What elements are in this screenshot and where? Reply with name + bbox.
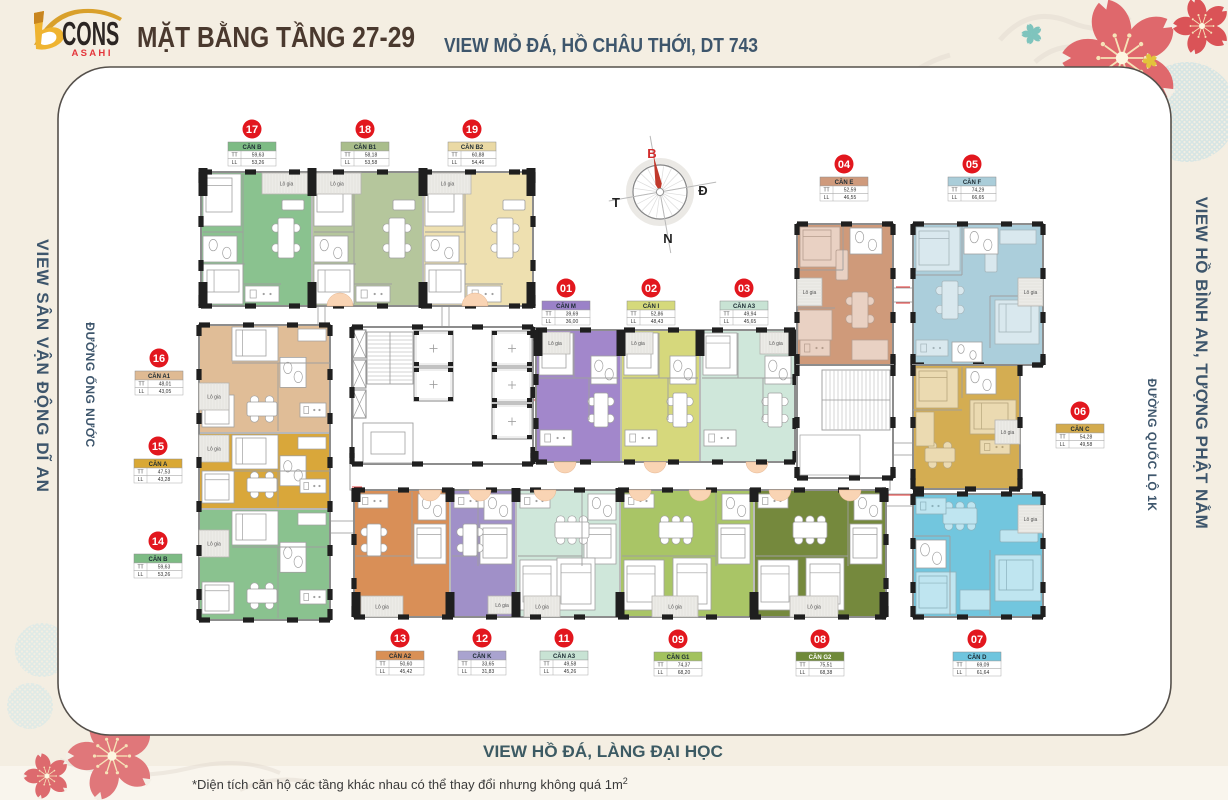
svg-text:B: B	[647, 146, 656, 161]
svg-text:Lô gia: Lô gia	[631, 341, 645, 347]
svg-text:TT: TT	[956, 663, 962, 669]
svg-text:LL: LL	[232, 160, 238, 166]
svg-text:LL: LL	[658, 670, 664, 676]
svg-text:52,59: 52,59	[844, 188, 857, 194]
svg-text:Lô gia: Lô gia	[207, 541, 221, 547]
svg-text:74,37: 74,37	[678, 663, 691, 669]
svg-text:LL: LL	[544, 669, 550, 675]
svg-text:58,18: 58,18	[365, 153, 378, 159]
svg-text:68,38: 68,38	[820, 670, 833, 676]
svg-text:60,88: 60,88	[472, 153, 485, 159]
svg-text:53,58: 53,58	[365, 160, 378, 166]
svg-text:Lô gia: Lô gia	[495, 603, 509, 609]
svg-text:Lô gia: Lô gia	[807, 604, 821, 610]
svg-text:47,53: 47,53	[158, 470, 171, 476]
svg-text:Lô gia: Lô gia	[375, 604, 389, 610]
svg-text:TT: TT	[451, 153, 457, 159]
svg-text:A S A H I: A S A H I	[71, 48, 110, 59]
svg-text:LL: LL	[380, 669, 386, 675]
svg-text:CĂN D: CĂN D	[968, 654, 988, 661]
svg-text:ĐƯỜNG QUỐC LỘ 1K: ĐƯỜNG QUỐC LỘ 1K	[1145, 379, 1160, 512]
svg-text:Lô gia: Lô gia	[548, 341, 562, 347]
svg-text:CĂN K: CĂN K	[473, 653, 493, 660]
svg-text:CONS: CONS	[62, 15, 119, 53]
svg-text:Lô gia: Lô gia	[1024, 290, 1038, 296]
svg-text:TT: TT	[630, 312, 636, 318]
svg-text:LL: LL	[952, 195, 958, 201]
svg-text:61,64: 61,64	[977, 670, 990, 676]
svg-text:18: 18	[359, 124, 371, 136]
svg-text:59,63: 59,63	[158, 565, 171, 571]
svg-text:19: 19	[466, 124, 478, 136]
svg-text:11: 11	[558, 633, 570, 645]
svg-text:TT: TT	[461, 662, 467, 668]
svg-text:TT: TT	[823, 188, 829, 194]
svg-text:LL: LL	[139, 389, 145, 395]
svg-text:Lô gia: Lô gia	[207, 394, 221, 400]
svg-text:49,94: 49,94	[744, 312, 757, 318]
svg-text:75,51: 75,51	[820, 663, 833, 669]
svg-text:LL: LL	[345, 160, 351, 166]
svg-text:53,26: 53,26	[252, 160, 265, 166]
svg-text:LL: LL	[138, 572, 144, 578]
svg-text:VIEW HỒ BÌNH AN, TƯỢNG PHẬT NẰ: VIEW HỒ BÌNH AN, TƯỢNG PHẬT NẰM	[1192, 197, 1211, 529]
svg-text:31,83: 31,83	[482, 669, 495, 675]
svg-text:TT: TT	[545, 312, 551, 318]
svg-text:CĂN A2: CĂN A2	[389, 653, 412, 660]
svg-text:54,28: 54,28	[1080, 435, 1093, 441]
svg-text:TT: TT	[799, 663, 805, 669]
svg-text:T: T	[612, 195, 620, 210]
svg-text:CĂN A3: CĂN A3	[553, 653, 576, 660]
svg-text:46,55: 46,55	[844, 195, 857, 201]
svg-text:CĂN I: CĂN I	[643, 303, 660, 310]
svg-text:CĂN B: CĂN B	[243, 144, 263, 151]
svg-text:TT: TT	[657, 663, 663, 669]
svg-text:LL: LL	[138, 477, 144, 483]
svg-text:04: 04	[838, 159, 851, 171]
svg-text:ĐƯỜNG ỐNG NƯỚC: ĐƯỜNG ỐNG NƯỚC	[83, 322, 98, 447]
svg-text:CĂN A1: CĂN A1	[148, 373, 171, 380]
svg-text:MẶT BẰNG TẦNG 27-29: MẶT BẰNG TẦNG 27-29	[137, 20, 415, 54]
svg-text:TT: TT	[1059, 435, 1065, 441]
svg-text:LL: LL	[724, 319, 730, 325]
svg-text:14: 14	[152, 536, 165, 548]
svg-text:08: 08	[814, 634, 826, 646]
svg-text:TT: TT	[137, 565, 143, 571]
svg-text:TT: TT	[951, 188, 957, 194]
svg-text:CĂN G2: CĂN G2	[809, 654, 832, 661]
svg-text:01: 01	[560, 283, 572, 295]
svg-text:50,60: 50,60	[400, 662, 413, 668]
svg-text:Lô gia: Lô gia	[769, 341, 783, 347]
svg-text:33,65: 33,65	[482, 662, 495, 668]
svg-text:43,28: 43,28	[158, 477, 171, 483]
svg-text:Lô gia: Lô gia	[441, 181, 455, 187]
svg-text:05: 05	[966, 159, 978, 171]
svg-text:TT: TT	[723, 312, 729, 318]
svg-text:48,43: 48,43	[651, 319, 664, 325]
svg-text:LL: LL	[1060, 442, 1066, 448]
svg-text:TT: TT	[344, 153, 350, 159]
svg-text:12: 12	[476, 633, 488, 645]
svg-text:07: 07	[971, 634, 983, 646]
svg-text:VIEW SÂN VẬN ĐỘNG DĨ AN: VIEW SÂN VẬN ĐỘNG DĨ AN	[33, 239, 53, 493]
svg-text:Lô gia: Lô gia	[803, 290, 817, 296]
svg-text:45,65: 45,65	[744, 319, 757, 325]
svg-text:CĂN B: CĂN B	[149, 556, 169, 563]
svg-text:Lô gia: Lô gia	[1024, 517, 1038, 523]
svg-text:*Diện tích căn hộ các tầng khá: *Diện tích căn hộ các tầng khác nhau có …	[192, 776, 628, 792]
svg-text:CĂN M: CĂN M	[556, 303, 576, 310]
svg-text:Đ: Đ	[698, 183, 707, 198]
svg-text:03: 03	[738, 283, 750, 295]
svg-text:VIEW MỎ ĐÁ, HỒ CHÂU THỚI, DT 7: VIEW MỎ ĐÁ, HỒ CHÂU THỚI, DT 743	[444, 33, 758, 57]
svg-text:Lô gia: Lô gia	[280, 181, 294, 187]
svg-text:CĂN C: CĂN C	[1071, 426, 1091, 433]
svg-text:CĂN B1: CĂN B1	[354, 144, 377, 151]
svg-text:52,86: 52,86	[651, 312, 664, 318]
svg-text:TT: TT	[543, 662, 549, 668]
svg-text:LL: LL	[452, 160, 458, 166]
svg-text:Lô gia: Lô gia	[1001, 430, 1015, 436]
svg-text:Lô gia: Lô gia	[207, 446, 221, 452]
svg-text:VIEW HỒ ĐÁ, LÀNG ĐẠI HỌC: VIEW HỒ ĐÁ, LÀNG ĐẠI HỌC	[483, 742, 723, 761]
svg-text:TT: TT	[137, 470, 143, 476]
svg-text:TT: TT	[379, 662, 385, 668]
svg-text:CĂN B2: CĂN B2	[461, 144, 484, 151]
svg-text:LL: LL	[631, 319, 637, 325]
svg-text:59,63: 59,63	[252, 153, 265, 159]
svg-text:CĂN A3: CĂN A3	[733, 303, 756, 310]
svg-text:49,58: 49,58	[564, 662, 577, 668]
svg-text:74,29: 74,29	[972, 188, 985, 194]
svg-text:17: 17	[246, 124, 258, 136]
svg-text:TT: TT	[138, 382, 144, 388]
svg-text:43,05: 43,05	[159, 389, 172, 395]
svg-text:13: 13	[394, 633, 406, 645]
svg-text:N: N	[663, 231, 672, 246]
svg-text:48,01: 48,01	[159, 382, 172, 388]
svg-text:39,69: 39,69	[566, 312, 579, 318]
svg-text:Lô gia: Lô gia	[668, 604, 682, 610]
svg-text:15: 15	[152, 441, 164, 453]
svg-text:TT: TT	[231, 153, 237, 159]
svg-text:02: 02	[645, 283, 657, 295]
svg-text:45,26: 45,26	[564, 669, 577, 675]
svg-text:CĂN F: CĂN F	[963, 179, 982, 186]
svg-text:CĂN G1: CĂN G1	[667, 654, 690, 661]
svg-text:LL: LL	[546, 319, 552, 325]
svg-text:45,42: 45,42	[400, 669, 413, 675]
svg-text:06: 06	[1074, 406, 1086, 418]
svg-text:09: 09	[672, 634, 684, 646]
svg-text:LL: LL	[462, 669, 468, 675]
svg-text:16: 16	[153, 353, 165, 365]
svg-text:53,26: 53,26	[158, 572, 171, 578]
svg-text:LL: LL	[800, 670, 806, 676]
svg-text:Lô gia: Lô gia	[330, 181, 344, 187]
svg-text:Lô gia: Lô gia	[535, 604, 549, 610]
svg-text:LL: LL	[824, 195, 830, 201]
svg-text:68,20: 68,20	[678, 670, 691, 676]
svg-text:66,65: 66,65	[972, 195, 985, 201]
svg-text:CĂN E: CĂN E	[835, 179, 854, 186]
svg-text:LL: LL	[957, 670, 963, 676]
svg-text:36,00: 36,00	[566, 319, 579, 325]
svg-text:54,46: 54,46	[472, 160, 485, 166]
svg-text:CĂN A: CĂN A	[149, 461, 168, 468]
svg-text:49,58: 49,58	[1080, 442, 1093, 448]
svg-text:69,09: 69,09	[977, 663, 990, 669]
